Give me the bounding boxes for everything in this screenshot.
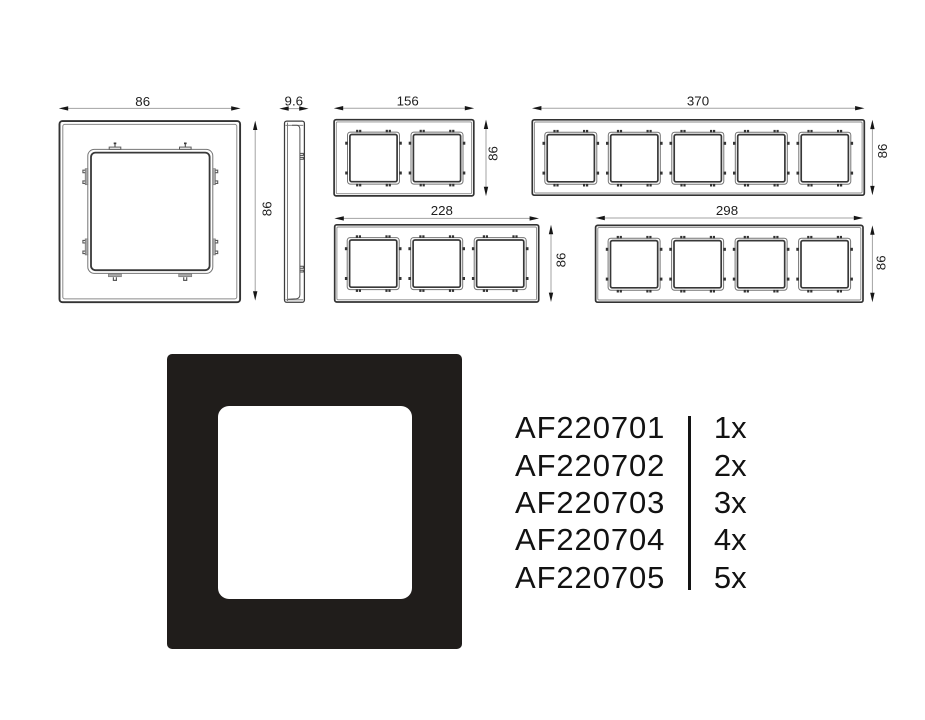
svg-text:86: 86 <box>873 255 888 270</box>
svg-text:156: 156 <box>397 94 419 109</box>
svg-text:9.6: 9.6 <box>285 94 304 109</box>
svg-text:86: 86 <box>875 144 890 159</box>
svg-text:86: 86 <box>486 146 501 161</box>
svg-text:86: 86 <box>135 94 150 109</box>
svg-text:86: 86 <box>259 201 274 216</box>
svg-text:86: 86 <box>553 253 568 268</box>
svg-text:298: 298 <box>716 203 738 218</box>
svg-text:228: 228 <box>431 203 453 218</box>
svg-text:370: 370 <box>687 94 709 109</box>
